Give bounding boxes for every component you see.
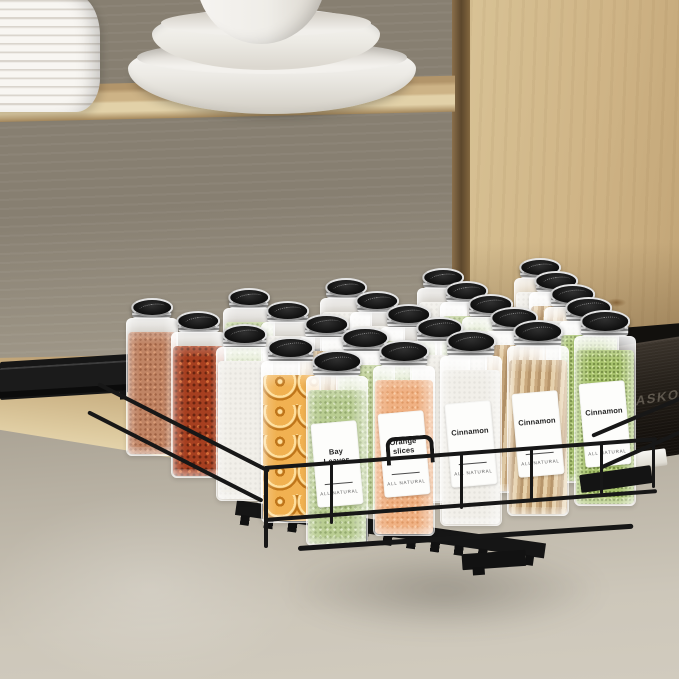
- basket-post: [530, 448, 533, 502]
- jar-lid: [580, 310, 630, 336]
- jar-label-title: Cinnamon: [581, 406, 628, 419]
- jar-label-divider: [391, 471, 419, 474]
- jar-label: Cinnamon ALL NATURAL: [511, 390, 564, 478]
- spice-jar: Cinnamon ALL NATURAL: [440, 330, 502, 526]
- basket-handle-notch: [385, 434, 435, 465]
- jar-label: Cinnamon ALL NATURAL: [444, 400, 497, 488]
- jar-label-subtitle: ALL NATURAL: [316, 487, 362, 496]
- jar-label-divider: [324, 481, 352, 484]
- jar-lid-sticker: [446, 330, 496, 353]
- jar-label-subtitle: ALL NATURAL: [450, 467, 496, 476]
- jar-lid: [513, 320, 563, 346]
- jar-label-subtitle: ALL NATURAL: [383, 477, 429, 486]
- jar-label-title: Cinnamon: [514, 416, 561, 429]
- jar-lid: [312, 350, 362, 376]
- jar-lid-sticker: [176, 311, 220, 331]
- basket-corner-post: [264, 468, 268, 548]
- jar-lid: [446, 330, 496, 356]
- jar-label-subtitle: ALL NATURAL: [517, 457, 563, 466]
- jar-lid-sticker: [513, 320, 563, 343]
- jar-lid-sticker: [580, 310, 630, 333]
- jar-lid: [379, 340, 429, 366]
- basket-post: [460, 452, 463, 509]
- jar-lid-sticker: [379, 340, 429, 363]
- jar-label-title: Cinnamon: [447, 426, 494, 439]
- jar-lid: [131, 298, 173, 318]
- product-photo-scene: ASKO: [0, 0, 679, 679]
- jar-lid-sticker: [312, 350, 362, 373]
- spice-jar-grid: Cinnamon ALL NATURAL Cinnamon ALL NATURA…: [0, 0, 679, 679]
- spice-jar: Cinnamon ALL NATURAL: [507, 320, 569, 516]
- basket-post: [330, 462, 333, 524]
- jar-lid-sticker: [131, 298, 173, 317]
- jar-lid: [176, 311, 220, 332]
